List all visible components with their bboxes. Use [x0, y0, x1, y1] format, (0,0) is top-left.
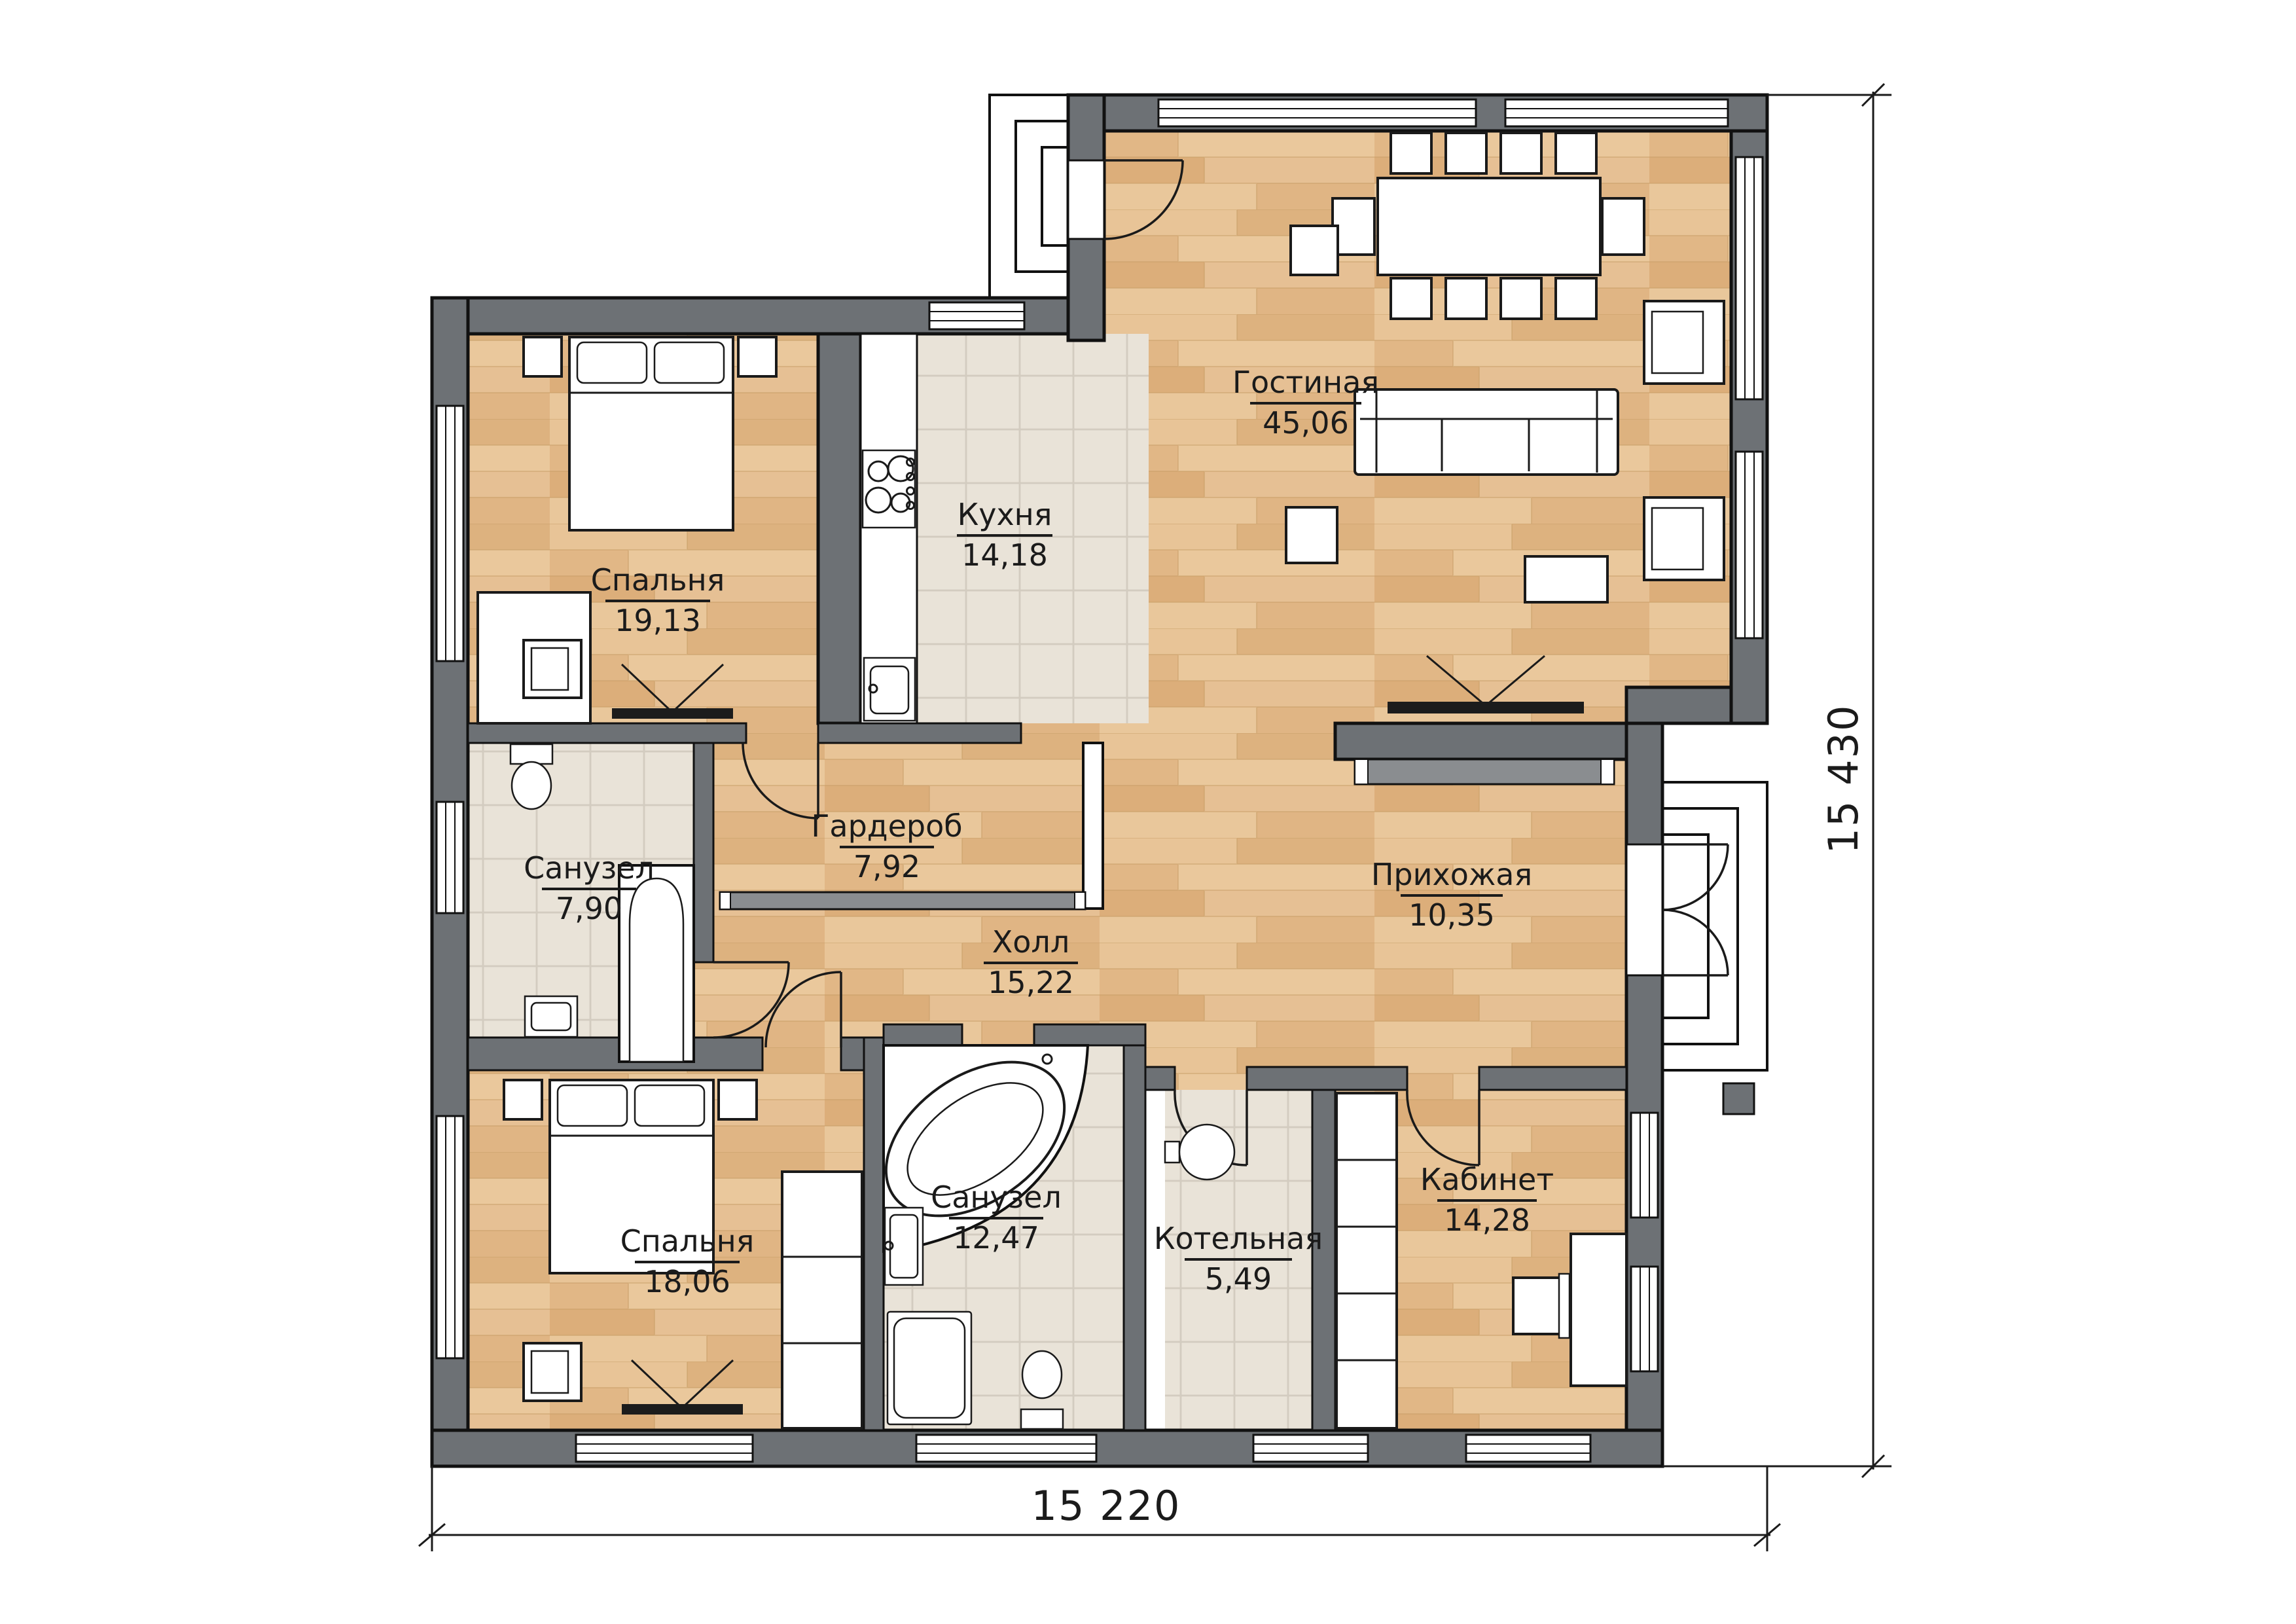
wall-bedroom2-top-b [841, 1038, 864, 1070]
wardrobe-room-area: 7,92 [853, 849, 920, 884]
coffee-table-icon [1525, 556, 1607, 602]
window-bottom-bathroom2 [916, 1435, 1096, 1462]
window-left-bathroom1 [437, 802, 463, 913]
wardrobe-icon [782, 1172, 862, 1428]
boiler-room-area: 5,49 [1205, 1261, 1272, 1297]
wall-bedroom1-kitchen [818, 334, 861, 723]
hall-name: Холл [992, 924, 1069, 960]
bathroom-2-name: Санузел [931, 1180, 1062, 1215]
kitchen-area: 14,18 [961, 537, 1048, 573]
wall-bathroom1-right [694, 743, 713, 962]
bookshelf-icon [1336, 1093, 1397, 1428]
kitchen-label: Кухня 14,18 [957, 497, 1052, 573]
hall-area: 15,22 [988, 965, 1074, 1000]
bedroom-1-area: 19,13 [615, 603, 701, 638]
dimension-bottom: 15 220 [419, 1466, 1780, 1551]
porch-pillar [1723, 1083, 1754, 1114]
side-table-icon [1286, 507, 1337, 563]
bathroom-1-area: 7,90 [556, 891, 622, 926]
kitchen-name: Кухня [958, 497, 1052, 532]
toilet-icon [1021, 1351, 1063, 1429]
closet-bar-icon [1355, 759, 1614, 784]
window-bottom-office [1466, 1435, 1590, 1462]
office-doorway-floor [1407, 1067, 1479, 1093]
nightstand-icon [719, 1080, 757, 1119]
wall-bathroom2-right [1124, 1045, 1145, 1430]
bathtub-icon [619, 865, 694, 1062]
wall-boiler-office [1312, 1090, 1335, 1430]
wardrobe-room-name: Гардероб [811, 808, 962, 844]
stove-icon [863, 450, 915, 528]
armchair-icon [1644, 497, 1724, 580]
window-left-bedroom2 [437, 1116, 463, 1358]
window-top-1 [1158, 99, 1476, 126]
shower-tray-icon [888, 1312, 971, 1424]
boiler-room-name: Котельная [1154, 1221, 1323, 1256]
window-bottom-boiler [1253, 1435, 1368, 1462]
nightstand-icon [524, 337, 562, 376]
bathroom-1-name: Санузел [524, 850, 655, 886]
sink-icon [525, 996, 577, 1037]
bedroom-2-name: Спальня [620, 1223, 755, 1259]
wall-boiler-top-a [1145, 1067, 1175, 1090]
wall-boiler-top-b [1247, 1067, 1407, 1090]
porch-steps-top [990, 95, 1068, 298]
dimension-bottom-value: 15 220 [1031, 1482, 1181, 1530]
armchair-icon [1644, 301, 1724, 384]
office-area: 14,28 [1444, 1202, 1530, 1238]
living-room-area: 45,06 [1263, 405, 1349, 441]
wall-bedroom1-bottom-a [468, 723, 746, 743]
armchair-icon [524, 1343, 581, 1401]
office-name: Кабинет [1420, 1162, 1554, 1197]
window-right-living-1 [1736, 157, 1763, 399]
armchair-icon [524, 640, 581, 698]
desk-chair-icon [1513, 1274, 1570, 1338]
window-kitchen-top [929, 302, 1024, 329]
desk-icon [1571, 1234, 1626, 1386]
window-top-2 [1505, 99, 1728, 126]
wall-wardrobe-stub [1083, 743, 1103, 909]
bedroom-2-doorway-floor [762, 1038, 841, 1074]
entryway-name: Прихожая [1371, 857, 1532, 892]
window-left-bedroom1 [437, 406, 463, 661]
kitchen-sink-icon [864, 658, 915, 721]
sink-icon [885, 1208, 923, 1285]
living-room-name: Гостиная [1232, 365, 1379, 400]
floor-plan-sheet: Гостиная 45,06 Кухня 14,18 Спальня 19,13… [0, 0, 2296, 1624]
bedroom-2-area: 18,06 [644, 1264, 730, 1299]
wall-bedroom2-bathroom2 [864, 1038, 884, 1430]
window-right-office-2 [1631, 1267, 1658, 1371]
window-bottom-bedroom2 [576, 1435, 753, 1462]
nightstand-icon [738, 337, 776, 376]
closet-bar-icon [720, 892, 1085, 909]
bedroom-1-name: Спальня [591, 562, 725, 598]
boiler-doorway-floor [1175, 1067, 1247, 1093]
hall-label: Холл 15,22 [984, 924, 1078, 1000]
window-right-office-1 [1631, 1113, 1658, 1218]
entryway-area: 10,35 [1408, 897, 1495, 933]
wall-bathroom2-top-b [1034, 1024, 1145, 1045]
floor-plan-drawing: Гостиная 45,06 Кухня 14,18 Спальня 19,13… [0, 0, 2296, 1624]
side-table-icon [1291, 226, 1338, 275]
toilet-icon [511, 744, 552, 809]
window-right-living-2 [1736, 452, 1763, 638]
wall-living-entryway [1335, 723, 1626, 759]
wall-bedroom2-top-a [468, 1038, 762, 1070]
wall-kitchen-bottom [818, 723, 1021, 743]
bathroom-1-doorway-floor [694, 962, 713, 1038]
dimension-right-value: 15 430 [1820, 704, 1867, 854]
sofa-icon [1355, 389, 1618, 475]
bathroom-2-area: 12,47 [953, 1220, 1039, 1255]
wall-office-top [1479, 1067, 1626, 1090]
nightstand-icon [504, 1080, 542, 1119]
wall-bathroom2-top-a [884, 1024, 962, 1045]
entry-porch-steps [1662, 782, 1767, 1114]
